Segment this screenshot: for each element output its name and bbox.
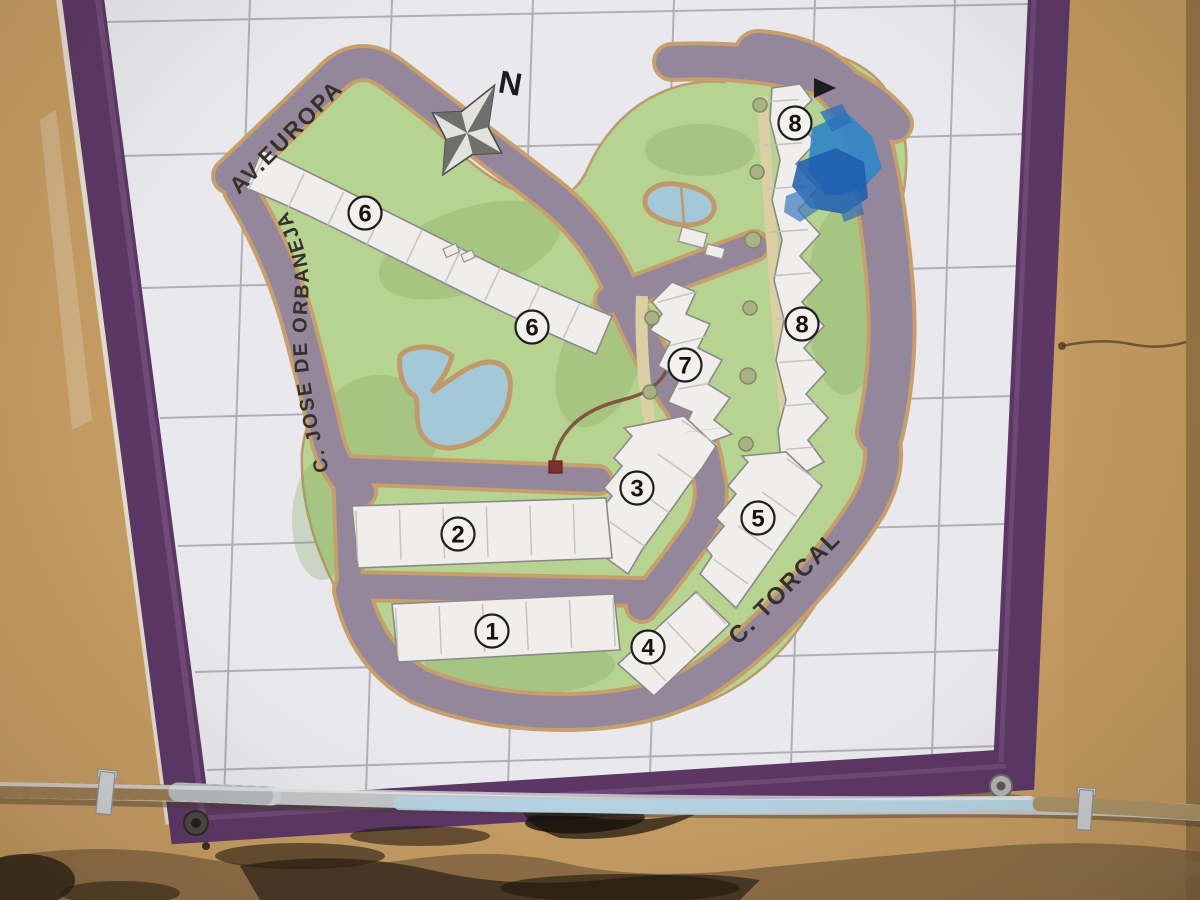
svg-text:3: 3	[630, 476, 643, 503]
svg-text:8: 8	[795, 312, 808, 339]
parking-connector	[346, 470, 350, 586]
frame-bolt-right	[990, 775, 1012, 797]
parking-row-lower	[350, 586, 642, 592]
wall-right-edge-shadow	[1186, 0, 1200, 900]
svg-text:6: 6	[358, 201, 371, 228]
pipe-tan-section	[1040, 804, 1200, 813]
building-6-badge-b: 6	[516, 311, 549, 344]
svg-text:4: 4	[641, 635, 655, 662]
building-3-badge: 3	[621, 472, 654, 505]
building-7-badge: 7	[669, 349, 702, 382]
building-5-badge: 5	[742, 502, 775, 535]
svg-text:5: 5	[751, 506, 764, 533]
svg-text:2: 2	[451, 522, 464, 549]
svg-text:7: 7	[678, 353, 691, 380]
site-map-photo-canvas: N AV.EUROPA C. JOSE DE ORBANEJA C. TORCA…	[0, 0, 1200, 900]
svg-text:6: 6	[525, 315, 538, 342]
pipe-tape-ridges	[178, 792, 272, 796]
building-2-badge: 2	[442, 518, 475, 551]
svg-text:8: 8	[788, 111, 801, 138]
pipe-rust-mottling	[0, 790, 185, 793]
photo-of-tiled-site-map: N AV.EUROPA C. JOSE DE ORBANEJA C. TORCA…	[0, 0, 1200, 900]
building-8-badge-b: 8	[786, 308, 819, 341]
svg-text:1: 1	[485, 619, 498, 646]
building-8-badge-a: 8	[779, 107, 812, 140]
wall-crack-hole	[1058, 342, 1066, 350]
wall-right-shade	[1064, 0, 1200, 900]
red-structure	[549, 461, 562, 473]
pipe-blue-section	[400, 803, 1030, 806]
pool-kidney	[645, 184, 714, 225]
building-4-badge: 4	[632, 631, 665, 664]
building-1-badge: 1	[476, 615, 509, 648]
building-6-badge-a: 6	[349, 197, 382, 230]
